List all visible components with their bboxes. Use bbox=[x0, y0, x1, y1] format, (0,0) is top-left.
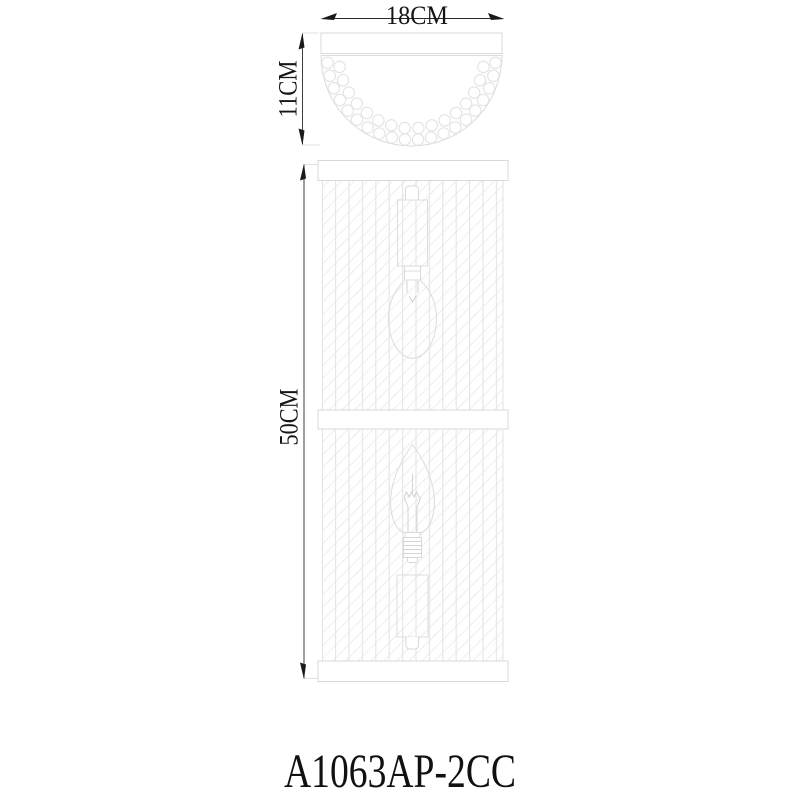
bottom-tab bbox=[406, 637, 419, 649]
top-view: 18CM 11CM bbox=[274, 1, 505, 146]
crystal-bead bbox=[439, 115, 450, 126]
crystal-bead bbox=[460, 114, 471, 125]
crystal-bead bbox=[488, 70, 499, 81]
crystal-bead bbox=[386, 132, 397, 143]
crystal-bead bbox=[362, 122, 373, 133]
crystal-bead bbox=[425, 132, 436, 143]
socket-tip bbox=[408, 558, 418, 563]
crystal-bead bbox=[351, 98, 362, 109]
crystal-bead bbox=[490, 57, 501, 68]
arrow-left-icon bbox=[321, 13, 338, 20]
crystal-bead bbox=[438, 128, 449, 139]
dim-body-height-label: 50CM bbox=[275, 389, 304, 446]
crystal-bead bbox=[343, 87, 354, 98]
mount-band-top-view bbox=[321, 33, 502, 54]
top-view-height-dimension: 11CM bbox=[274, 33, 321, 146]
top-view-body bbox=[321, 33, 502, 146]
crystal-bead bbox=[351, 114, 362, 125]
top-hook-tab bbox=[406, 186, 419, 200]
crystal-bead bbox=[450, 122, 461, 133]
crystal-bead bbox=[478, 61, 489, 72]
crystal-bead bbox=[399, 122, 410, 133]
arrow-down-icon bbox=[299, 129, 305, 146]
bottom-band bbox=[318, 661, 508, 682]
top-view-width-dimension: 18CM bbox=[321, 1, 505, 30]
shade-semicircle bbox=[321, 56, 502, 146]
crystal-bead bbox=[374, 128, 385, 139]
arrow-right-icon bbox=[488, 13, 505, 20]
technical-drawing: 18CM 11CM bbox=[0, 0, 800, 800]
upper-socket bbox=[405, 266, 421, 280]
crystal-bead bbox=[469, 87, 480, 98]
crystal-bead bbox=[322, 57, 333, 68]
crystal-bead bbox=[413, 122, 424, 133]
middle-band bbox=[318, 410, 508, 429]
socket-collar bbox=[405, 533, 420, 538]
crystal-bead bbox=[474, 75, 485, 86]
crystal-bead bbox=[484, 83, 495, 94]
front-view: 50CM bbox=[275, 161, 509, 682]
crystal-bead bbox=[361, 107, 372, 118]
socket-threads bbox=[404, 538, 422, 558]
arrow-up-icon bbox=[299, 33, 305, 50]
top-band bbox=[318, 161, 508, 181]
crystal-bead bbox=[399, 134, 410, 145]
crystal-bead bbox=[337, 75, 348, 86]
dim-height-label: 11CM bbox=[274, 61, 303, 118]
crystal-bead bbox=[450, 107, 461, 118]
crystal-bead bbox=[460, 98, 471, 109]
crystal-bead bbox=[412, 134, 423, 145]
crystal-bead bbox=[324, 70, 335, 81]
product-code: A1063AP-2CC bbox=[284, 745, 516, 798]
crystal-bead bbox=[386, 120, 397, 131]
front-view-height-dimension: 50CM bbox=[275, 164, 319, 680]
crystal-beads bbox=[322, 57, 501, 145]
crystal-bead bbox=[334, 61, 345, 72]
crystal-bead bbox=[373, 115, 384, 126]
arrow-down-icon bbox=[300, 663, 306, 680]
crystal-bead bbox=[426, 120, 437, 131]
dim-width-label: 18CM bbox=[386, 1, 448, 30]
crystal-bead bbox=[328, 83, 339, 94]
arrow-up-icon bbox=[300, 164, 306, 181]
